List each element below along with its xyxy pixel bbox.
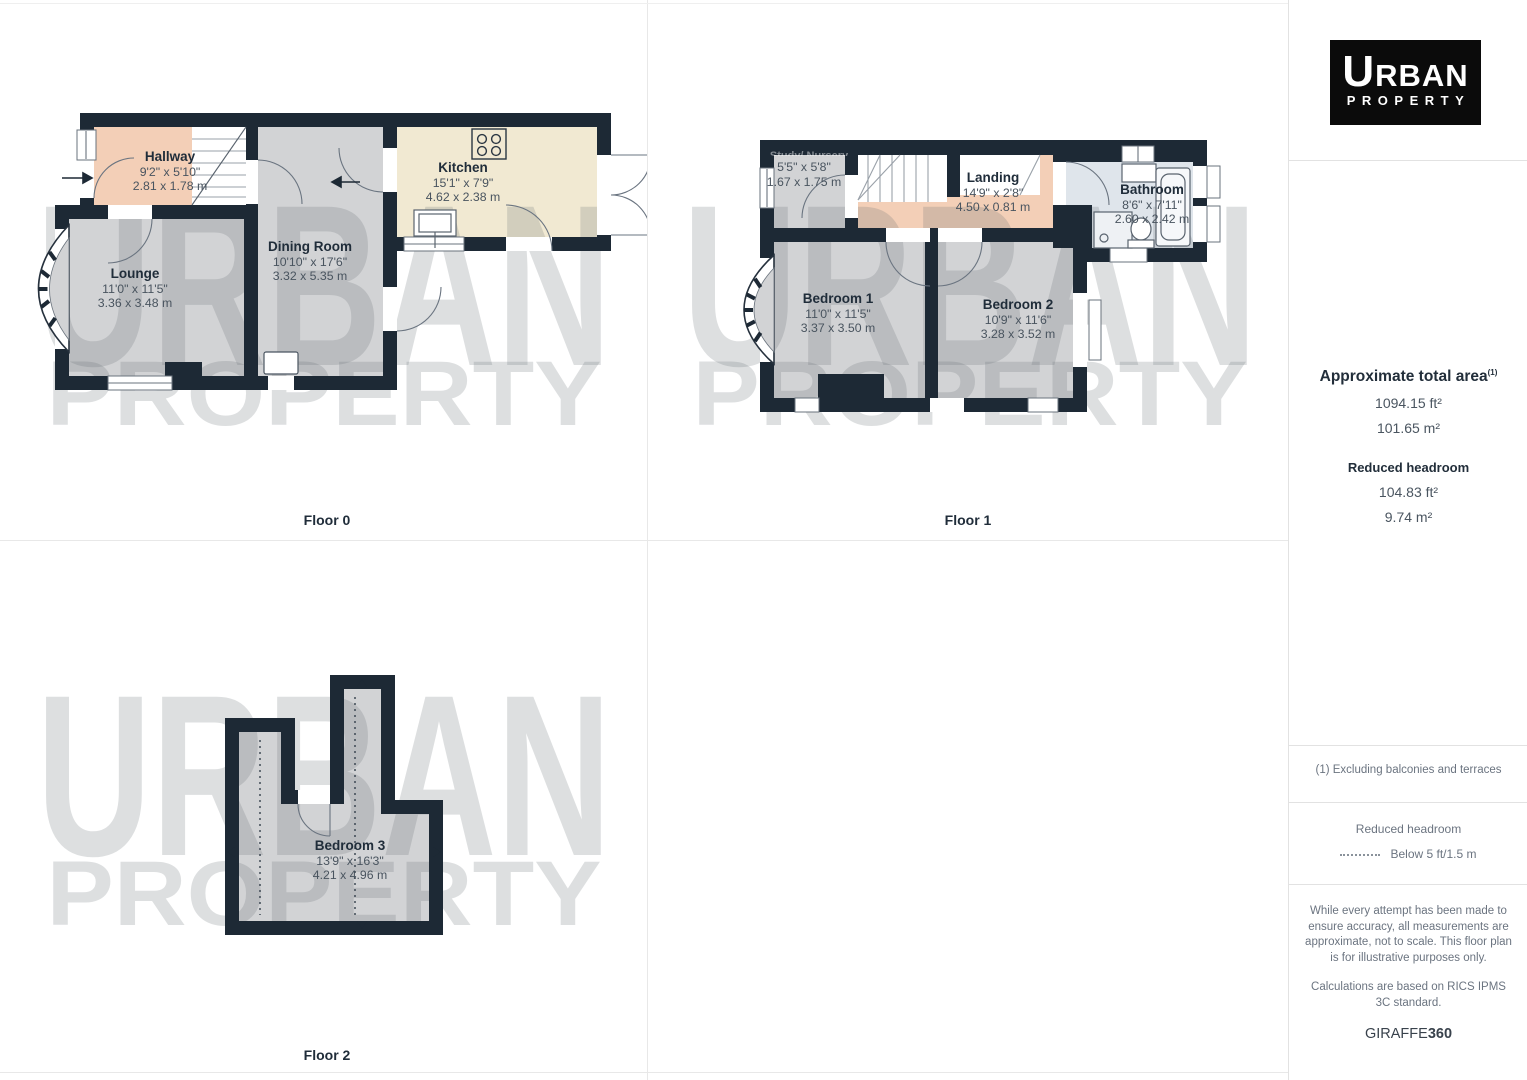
- disclaimer-paragraph-1: While every attempt has been made to ens…: [1303, 904, 1514, 966]
- room-name: Study/ Nursery: [760, 150, 858, 156]
- disclaimer-paragraph-2: Calculations are based on RICS IPMS 3C s…: [1303, 980, 1514, 1011]
- reduced-headroom-heading: Reduced headroom: [1289, 460, 1527, 475]
- credit-bold: 360: [1428, 1026, 1452, 1042]
- logo-word-urban: URBAN: [1342, 57, 1468, 91]
- logo-letter-u: U: [1342, 47, 1375, 96]
- logo-word-rest: RBAN: [1375, 58, 1469, 93]
- room-dim-metric: 3.37 x 3.50 m: [801, 321, 876, 336]
- legend-title: Reduced headroom: [1289, 822, 1527, 836]
- room-label-lounge: Lounge 11'0" x 11'5" 3.36 x 3.48 m: [98, 267, 173, 311]
- sidebar-divider-4: [1289, 884, 1527, 885]
- room-dim-imperial: 9'2" x 5'10": [133, 165, 208, 180]
- credit-normal: GIRAFFE: [1365, 1026, 1428, 1042]
- grid-divider-top: [0, 3, 1288, 4]
- room-dim-imperial: 11'0" x 11'5": [98, 282, 173, 297]
- total-area-heading: Approximate total area(1): [1289, 368, 1527, 386]
- room-name: Landing: [956, 171, 1031, 186]
- urban-property-logo: URBAN PROPERTY: [1330, 40, 1481, 125]
- room-label-bathroom: Bathroom 8'6" x 7'11" 2.60 x 2.42 m: [1115, 183, 1190, 227]
- room-label-bedroom-1: Bedroom 1 11'0" x 11'5" 3.37 x 3.50 m: [801, 292, 876, 336]
- room-name: Lounge: [98, 267, 173, 282]
- dotted-line-icon: [1340, 853, 1380, 856]
- floor-2-label: Floor 2: [304, 1047, 351, 1063]
- floor-1-plan: URBAN PROPERTY: [648, 0, 1288, 540]
- grid-divider-bottom: [0, 1072, 1288, 1073]
- legend-row: Below 5 ft/1.5 m: [1289, 847, 1527, 861]
- sidebar-divider-1: [1289, 160, 1527, 161]
- room-dim-metric: 1.67 x 1.75 m: [767, 175, 842, 190]
- room-dim-metric: 4.50 x 0.81 m: [956, 200, 1031, 215]
- empty-cell: [648, 540, 1288, 1080]
- floor-1-label: Floor 1: [945, 512, 992, 528]
- room-dim-metric: 3.36 x 3.48 m: [98, 296, 173, 311]
- floor-0-label: Floor 0: [304, 512, 351, 528]
- room-label-kitchen: Kitchen 15'1" x 7'9" 4.62 x 2.38 m: [426, 161, 501, 205]
- total-area-m: 101.65 m²: [1289, 420, 1527, 436]
- info-sidebar: URBAN PROPERTY Approximate total area(1)…: [1288, 0, 1527, 1080]
- room-label-hallway: Hallway 9'2" x 5'10" 2.81 x 1.78 m: [133, 150, 208, 194]
- room-dim-imperial: 8'6" x 7'11": [1115, 198, 1190, 213]
- room-name: Dining Room: [268, 240, 352, 255]
- svg-text:PROPERTY: PROPERTY: [693, 343, 1248, 445]
- floor-2-cell: URBAN PROPERTY: [0, 540, 648, 1080]
- svg-text:PROPERTY: PROPERTY: [47, 343, 602, 445]
- room-name: Bedroom 2: [981, 298, 1056, 313]
- room-label-study-nursery: Study/ Nursery: [760, 140, 858, 156]
- room-dim-imperial: 15'1" x 7'9": [426, 176, 501, 191]
- room-dim-imperial: 14'9" x 2'8": [956, 186, 1031, 201]
- room-name: Bedroom 1: [801, 292, 876, 307]
- room-dim-imperial: 11'0" x 11'5": [801, 307, 876, 322]
- room-name: Kitchen: [426, 161, 501, 176]
- total-area-ft: 1094.15 ft²: [1289, 395, 1527, 411]
- room-dim-imperial: 5'5" x 5'8": [767, 160, 842, 175]
- room-name: Hallway: [133, 150, 208, 165]
- logo-word-property: PROPERTY: [1341, 93, 1471, 108]
- disclaimer-block: While every attempt has been made to ens…: [1303, 904, 1514, 1043]
- room-label-dining-room: Dining Room 10'10" x 17'6" 3.32 x 5.35 m: [268, 240, 352, 284]
- fireplace-icon: [264, 352, 298, 374]
- grid-divider-horizontal: [0, 540, 1288, 541]
- total-area-footnote-marker: (1): [1488, 368, 1498, 377]
- giraffe360-credit: GIRAFFE360: [1303, 1027, 1514, 1043]
- legend-label: Below 5 ft/1.5 m: [1390, 847, 1476, 861]
- reduced-headroom-ft: 104.83 ft²: [1289, 484, 1527, 500]
- room-dim-imperial: 10'10" x 17'6": [268, 255, 352, 270]
- floor-2-openings: [298, 790, 330, 804]
- room-label-study-dims: 5'5" x 5'8" 1.67 x 1.75 m: [767, 160, 842, 189]
- room-dim-metric: 2.81 x 1.78 m: [133, 179, 208, 194]
- room-dim-metric: 2.60 x 2.42 m: [1115, 212, 1190, 227]
- area-summary: Approximate total area(1) 1094.15 ft² 10…: [1289, 368, 1527, 525]
- room-dim-metric: 3.28 x 3.52 m: [981, 327, 1056, 342]
- room-name: Bathroom: [1115, 183, 1190, 198]
- reduced-headroom-m: 9.74 m²: [1289, 509, 1527, 525]
- sidebar-divider-3: [1289, 802, 1527, 803]
- room-label-bedroom-3: Bedroom 3 13'9" x 16'3" 4.21 x 4.96 m: [313, 839, 388, 883]
- floor-2-plan: URBAN PROPERTY: [0, 540, 648, 1080]
- room-dim-metric: 4.62 x 2.38 m: [426, 190, 501, 205]
- room-dim-metric: 3.32 x 5.35 m: [268, 269, 352, 284]
- sidebar-divider-2: [1289, 745, 1527, 746]
- total-area-heading-text: Approximate total area: [1320, 368, 1488, 385]
- floor-1-cell: URBAN PROPERTY: [648, 0, 1288, 540]
- room-label-landing: Landing 14'9" x 2'8" 4.50 x 0.81 m: [956, 171, 1031, 215]
- room-dim-imperial: 13'9" x 16'3": [313, 854, 388, 869]
- floor-0-cell: URBAN PROPERTY: [0, 0, 648, 540]
- room-dim-imperial: 10'9" x 11'6": [981, 313, 1056, 328]
- room-name: Bedroom 3: [313, 839, 388, 854]
- room-label-bedroom-2: Bedroom 2 10'9" x 11'6" 3.28 x 3.52 m: [981, 298, 1056, 342]
- footnote-text: (1) Excluding balconies and terraces: [1289, 764, 1527, 776]
- room-dim-metric: 4.21 x 4.96 m: [313, 868, 388, 883]
- floorplan-page: URBAN PROPERTY: [0, 0, 1527, 1080]
